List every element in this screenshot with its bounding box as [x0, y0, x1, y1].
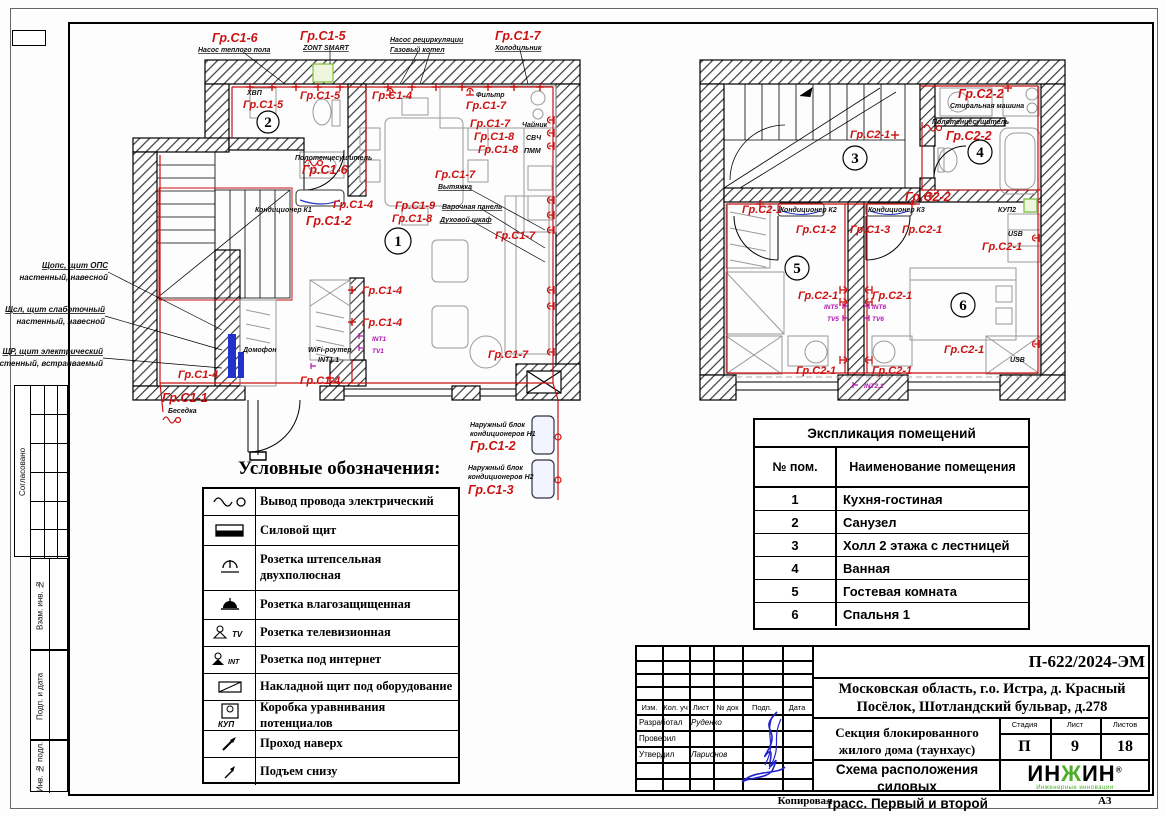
grid-line — [812, 677, 1150, 679]
circuit-label: Гр.С1-5 — [243, 99, 284, 111]
room-number: 5 — [793, 261, 801, 277]
device-label: Насос рециркуляции — [390, 37, 464, 44]
object-name-line1: Секция блокированного — [815, 725, 999, 742]
role-approved: Утвердил — [639, 750, 689, 759]
object-name-line2: жилого дома (таунхаус) — [815, 742, 999, 759]
panel-label: ЩР, щит электрический — [2, 347, 103, 356]
room-name-cell: Гостевая комната — [837, 580, 1028, 602]
table-row: 3 Холл 2 этажа с лестницей — [755, 534, 1028, 557]
circuit-label: Гр.С2-1 — [944, 344, 984, 356]
power-panel-icon — [204, 516, 256, 545]
room-number: 6 — [959, 298, 967, 314]
panel-label: Щопс, щит ОПС — [42, 261, 108, 270]
role-developed: Разработал — [639, 718, 689, 727]
circuit-label: Гр.С1-1 — [162, 391, 208, 405]
col-kol: Кол. уч — [662, 703, 689, 712]
device-label: ПММ — [524, 148, 541, 155]
device-label: Духовой шкаф — [439, 216, 492, 224]
circuit-label: Гр.С1-8 — [474, 131, 515, 143]
circuit-label: Гр.С1-4 — [333, 199, 373, 211]
circuit-label: Гр.С1-8 — [392, 213, 433, 225]
project-address-line1: Московская область, г.о. Истра, д. Красн… — [815, 680, 1149, 698]
socket-internet-icon: INT — [204, 647, 256, 673]
circuit-label: Гр.С1-4 — [300, 375, 340, 387]
legend-item-label: Розетка телевизионная — [256, 620, 458, 646]
int-socket-label: INT6 — [872, 304, 886, 311]
device-label: Наружный блок — [470, 421, 525, 429]
device-label: Полотенцесушитель — [295, 155, 372, 162]
room-number-cell: 2 — [755, 511, 837, 533]
room-schedule-title: Экспликация помещений — [755, 420, 1028, 448]
room-number: 2 — [264, 115, 272, 131]
document-number: П-622/2024-ЭМ — [817, 652, 1145, 672]
sheet-label: Лист — [1050, 720, 1100, 729]
plan1-labels: Гр.С1-6 Насос теплого пола Гр.С1-5 ZONT … — [0, 29, 548, 497]
developer-name: Руденко — [691, 718, 741, 727]
circuit-label: Гр.С2-2 — [905, 190, 951, 204]
project-address-line2: Посёлок, Шотландский бульвар, д.278 — [815, 698, 1149, 716]
room-number: 1 — [394, 234, 402, 250]
device-label: КУП2 — [998, 207, 1016, 214]
sheet-value: 9 — [1050, 738, 1100, 756]
room-schedule-table: Экспликация помещений № пом. Наименовани… — [753, 418, 1030, 630]
device-label: Фильтр — [476, 92, 505, 99]
kup-tag: КУП — [218, 720, 234, 729]
panel-label: Щсл, щит слаботочный — [5, 305, 105, 314]
device-label: Чайник — [522, 121, 548, 129]
device-label: Наружный блок — [468, 464, 523, 472]
int-socket-label: INT5 — [824, 304, 838, 311]
socket-waterproof-icon — [204, 591, 256, 619]
circuit-label: Гр.С2-2 — [958, 87, 1004, 101]
socket-two-pole-icon — [204, 546, 256, 590]
sheet-title-line1: Схема расположения силовых — [814, 762, 1000, 796]
circuit-label: Гр.С2-1 — [982, 241, 1022, 253]
panel-label: настенный, встраиваемый — [0, 359, 103, 368]
int-socket-label: INT2.1 — [864, 383, 884, 390]
room-number-cell: 3 — [755, 534, 837, 556]
circuit-label: Гр.С1-2 — [796, 224, 836, 236]
room-number-cell: 4 — [755, 557, 837, 579]
plan1-room-circles: 1 2 — [257, 111, 411, 254]
room-name-cell: Кухня-гостиная — [837, 488, 1028, 510]
legend-item-label: Подъем снизу — [256, 758, 458, 785]
logo-text-a: ИН — [1027, 761, 1061, 786]
int-socket-label: INT1 — [372, 336, 386, 343]
device-label: Варочная панель — [442, 204, 502, 211]
circuit-label: Гр.С1-4 — [362, 317, 402, 329]
legend-item-label: Проход наверх — [256, 731, 458, 757]
legend-item-label: Розетка влагозащищенная — [256, 591, 458, 619]
tv-tag: TV — [232, 630, 243, 639]
room-number: 4 — [976, 145, 984, 161]
table-row: 5 Гостевая комната — [755, 580, 1028, 603]
circuit-label: Гр.С1-2 — [470, 439, 516, 453]
room-name-cell: Санузел — [837, 511, 1028, 533]
circuit-label: Гр.С1-6 — [212, 31, 259, 45]
stage-value: П — [999, 738, 1050, 756]
title-block: Изм. Кол. уч Лист № док Подп. Дата Разра… — [635, 645, 1150, 792]
table-row: 4 Ванная — [755, 557, 1028, 580]
registered-mark: ® — [1116, 766, 1123, 775]
room-name-cell: Ванная — [837, 557, 1028, 579]
kup2-box — [1024, 199, 1037, 212]
grid-line — [812, 717, 1150, 719]
circuit-label: Гр.С2-1 — [798, 290, 838, 302]
sheets-value: 18 — [1100, 738, 1150, 756]
circuit-label: Гр.С1-7 — [495, 230, 536, 242]
circuit-label: Гр.С1-9 — [395, 200, 436, 212]
circuit-label: Гр.С1-8 — [478, 144, 519, 156]
room-number-cell: 1 — [755, 488, 837, 510]
legend-item-label: Розетка штепсельная двухполюсная — [256, 546, 458, 590]
tv-socket-label: TV5 — [827, 316, 839, 323]
signature-scribble — [737, 707, 792, 787]
format-label: А3 — [1098, 795, 1111, 807]
logo-text-c: ИН — [1082, 761, 1116, 786]
role-checked: Проверил — [639, 734, 689, 743]
approver-name: Ларионов — [691, 750, 741, 759]
wire-exit-icon — [204, 489, 256, 515]
legend-item-label: Накладной щит под оборудование — [256, 674, 458, 700]
device-label: Домофон — [242, 347, 277, 354]
grid-line — [637, 673, 812, 675]
device-label: USB — [1008, 231, 1023, 238]
legend-item-label: Силовой щит — [256, 516, 458, 545]
grid-line — [999, 733, 1150, 735]
circuit-label: Гр.С2-1 — [850, 129, 890, 141]
circuit-label: Гр.С1-7 — [435, 169, 476, 181]
surface-panel-icon — [204, 674, 256, 700]
circuit-label: Гр.С1-7 — [470, 118, 511, 130]
circuit-label: Гр.С1-4 — [372, 90, 412, 102]
col-room-name: Наименование помещения — [837, 448, 1028, 486]
col-room-number: № пом. — [755, 448, 837, 486]
legend-item-label: Розетка под интернет — [256, 647, 458, 673]
grid-line — [637, 660, 812, 662]
device-label: Газовый котел — [390, 46, 445, 54]
device-label: Беседка — [168, 407, 197, 415]
device-label: ZONT SMART — [302, 45, 349, 52]
col-izm: Изм. — [637, 703, 662, 712]
grid-line — [637, 686, 812, 688]
zont-smart-device — [313, 64, 333, 82]
circuit-label: Гр.С1-6 — [302, 163, 349, 177]
room-number-cell: 6 — [755, 603, 837, 626]
circuit-label: Гр.С1-2 — [306, 214, 352, 228]
circuit-label: Гр.С1-7 — [495, 29, 542, 43]
tv-socket-label: TV1 — [372, 348, 384, 355]
int-tag: INT — [228, 659, 240, 666]
tv-socket-label: TV6 — [872, 316, 884, 323]
circuit-label: Гр.С1-4 — [362, 285, 402, 297]
device-label: WiFi-роутер — [308, 347, 352, 354]
circuit-label: Гр.С2-1 — [742, 204, 782, 216]
grid-line — [637, 699, 812, 701]
drawing-sheet: Согласовано Взам. инв. № Подп. и дата Ин… — [0, 0, 1166, 816]
pass-up-icon — [204, 731, 256, 757]
legend-item-label: Вывод провода электрический — [256, 489, 458, 515]
plan2-labels: Гр.С2-2 Стиральная машина Гр.С2-1 Полоте… — [742, 87, 1025, 390]
room-number-cell: 5 — [755, 580, 837, 602]
circuit-label: Гр.С2-1 — [872, 365, 912, 377]
copied-by-label: Копировал — [760, 795, 850, 807]
sheets-label: Листов — [1100, 720, 1150, 729]
circuit-label: Гр.С2-1 — [796, 365, 836, 377]
legend-item-label: Коробка уравнивания потенциалов — [256, 701, 458, 730]
col-list: Лист — [689, 703, 713, 712]
device-label: USB — [1010, 357, 1025, 364]
circuit-label: Гр.С2-1 — [902, 224, 942, 236]
device-label: СВЧ — [526, 135, 542, 142]
table-row: 6 Спальня 1 — [755, 603, 1028, 626]
plan1-outdoor-ac-units — [532, 416, 554, 498]
circuit-label: Гр.С1-4 — [178, 369, 218, 381]
device-label: Вытяжка — [438, 184, 472, 191]
device-label: INT1.1 — [318, 357, 339, 364]
circuit-label: Гр.С1-3 — [468, 483, 514, 497]
device-label: кондиционеров Н1 — [470, 430, 536, 438]
potential-equalization-icon: КУП — [204, 701, 256, 730]
device-label: Холодильник — [494, 44, 542, 52]
table-row: 2 Санузел — [755, 511, 1028, 534]
room-name-cell: Холл 2 этажа с лестницей — [837, 534, 1028, 556]
device-label: Кондиционер К1 — [255, 206, 312, 214]
device-label: кондиционеров Н2 — [468, 473, 534, 481]
rise-from-below-icon — [204, 758, 256, 785]
room-name-cell: Спальня 1 — [837, 603, 1028, 626]
panel-label: настенный, навесной — [19, 273, 108, 282]
legend-title: Условные обозначения: — [238, 458, 440, 480]
logo-text-b: Ж — [1061, 761, 1082, 786]
device-label: Насос теплого пола — [198, 47, 270, 54]
table-row: 1 Кухня-гостиная — [755, 488, 1028, 511]
company-logo: ИНЖИН® Инженерные инновации — [1003, 763, 1147, 791]
circuit-label: Гр.С1-7 — [488, 349, 529, 361]
device-label: Полотенцесушитель — [932, 119, 1009, 126]
circuit-label: Гр.С1-5 — [300, 90, 341, 102]
circuit-label: Гр.С1-3 — [850, 224, 890, 236]
device-label: Кондиционер К3 — [868, 206, 925, 214]
room-number: 3 — [851, 151, 859, 167]
device-label: ХВП — [246, 90, 263, 97]
legend-table: Вывод провода электрический Силовой щит … — [202, 487, 460, 784]
socket-tv-icon: TV — [204, 620, 256, 646]
device-label: Кондиционер К2 — [780, 206, 837, 214]
plan1-panels — [228, 334, 244, 378]
logo-subtitle: Инженерные инновации — [1003, 785, 1147, 791]
device-label: Стиральная машина — [950, 103, 1024, 110]
circuit-label: Гр.С1-7 — [466, 100, 507, 112]
circuit-label: Гр.С1-5 — [300, 29, 347, 43]
panel-label: настенный, навесной — [16, 317, 105, 326]
stage-label: Стадия — [999, 720, 1050, 729]
circuit-label: Гр.С2-1 — [872, 290, 912, 302]
